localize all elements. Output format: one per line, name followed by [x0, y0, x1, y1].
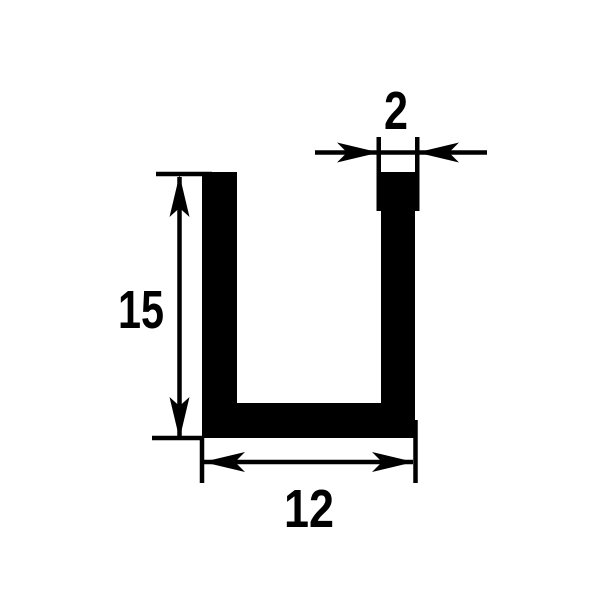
drawing-canvas: 15 12 2: [0, 0, 600, 600]
thickness-dimension-label: 2: [384, 81, 408, 141]
height-dimension-label: 15: [118, 280, 164, 340]
u-profile-technical-drawing: 15 12 2: [0, 0, 600, 600]
width-dimension-label: 12: [284, 479, 334, 539]
u-profile-shape: [202, 172, 415, 438]
height-dimension: 15: [118, 174, 212, 439]
